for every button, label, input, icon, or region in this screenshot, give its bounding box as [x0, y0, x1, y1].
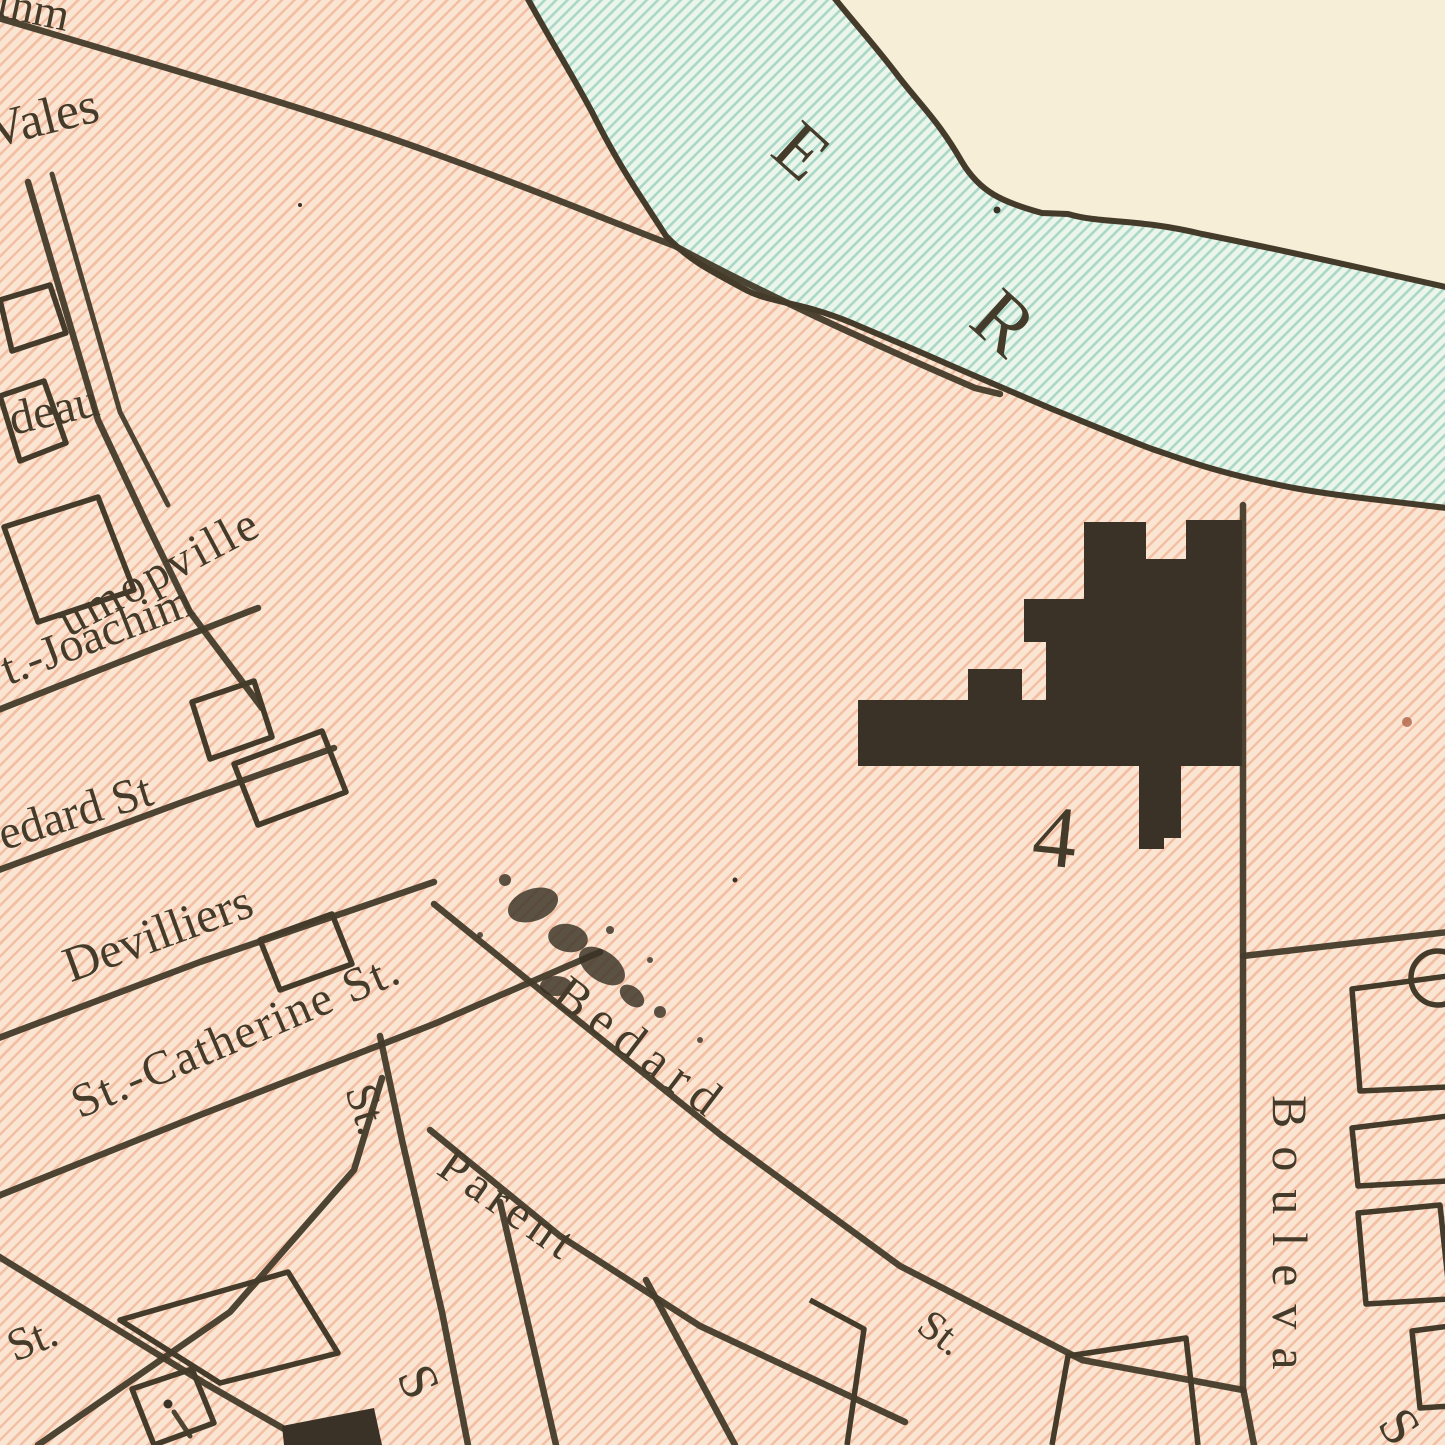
road-vales-street-parallel	[52, 174, 168, 505]
speck-1	[994, 207, 1001, 214]
road-devilliers	[0, 882, 434, 1042]
speck-3	[298, 203, 302, 207]
road-st-vertical	[380, 1036, 468, 1445]
speck-2	[733, 878, 738, 883]
block-deau	[4, 497, 134, 622]
road-parent	[430, 1130, 905, 1422]
block-devilliers	[260, 914, 352, 990]
speck-red	[1402, 717, 1412, 727]
road-riverside-branch	[1243, 932, 1445, 956]
block-left-2	[0, 381, 66, 461]
road-boulevard	[1243, 505, 1254, 1445]
building-bottomleft-filled	[282, 1408, 382, 1445]
block-right-4	[1412, 1326, 1445, 1408]
block-right-3	[1358, 1205, 1445, 1304]
block-bottomcenter-right	[1052, 1338, 1198, 1445]
building-4	[858, 520, 1242, 849]
road-bottomcenter-1	[500, 1202, 556, 1445]
map-artwork	[0, 0, 1445, 1445]
block-right-2	[1352, 1116, 1445, 1186]
road-bottomcenter-2	[646, 1280, 735, 1445]
road-st-catherine	[0, 952, 600, 1200]
block-right-1	[1352, 976, 1445, 1091]
road-bedard-west	[0, 748, 334, 874]
block-joachim	[192, 681, 272, 759]
block-left-1	[0, 285, 66, 351]
map-canvas: thmValesdeauumopvillet.-Joachimedard StD…	[0, 0, 1445, 1445]
building-dot-marker	[164, 1400, 173, 1409]
ink-blot	[477, 874, 703, 1043]
block-bottomcenter-partial	[810, 1300, 864, 1445]
